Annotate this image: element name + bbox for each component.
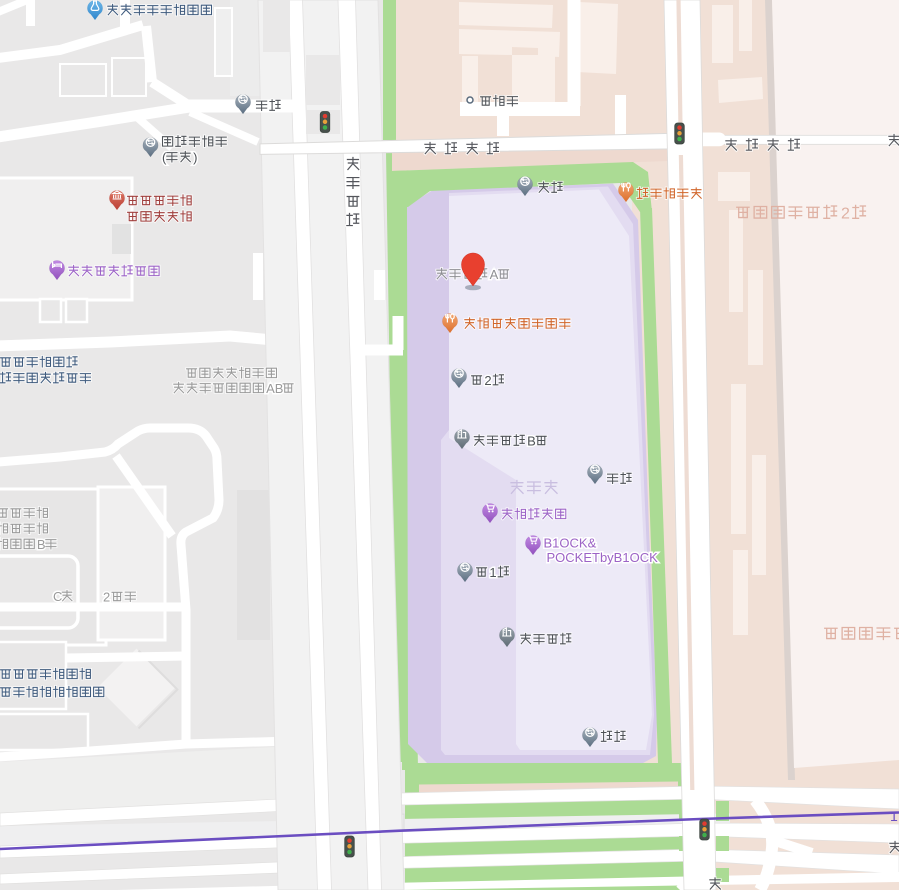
svg-text:2: 2 (484, 373, 491, 388)
svg-text:(: ( (162, 150, 167, 165)
svg-text:POCKETbyB1OCK: POCKETbyB1OCK (547, 550, 659, 565)
svg-text:B1OCK&: B1OCK& (544, 536, 597, 551)
svg-text:A: A (490, 267, 499, 282)
svg-text:AB: AB (266, 381, 283, 396)
svg-text:1: 1 (890, 808, 898, 824)
svg-text:B: B (37, 537, 46, 552)
svg-text:2: 2 (841, 206, 850, 223)
svg-text:C: C (53, 589, 62, 604)
svg-text:): ) (193, 150, 197, 165)
svg-text:2: 2 (103, 590, 110, 605)
svg-text:1: 1 (489, 565, 496, 580)
svg-text:B: B (527, 434, 536, 449)
